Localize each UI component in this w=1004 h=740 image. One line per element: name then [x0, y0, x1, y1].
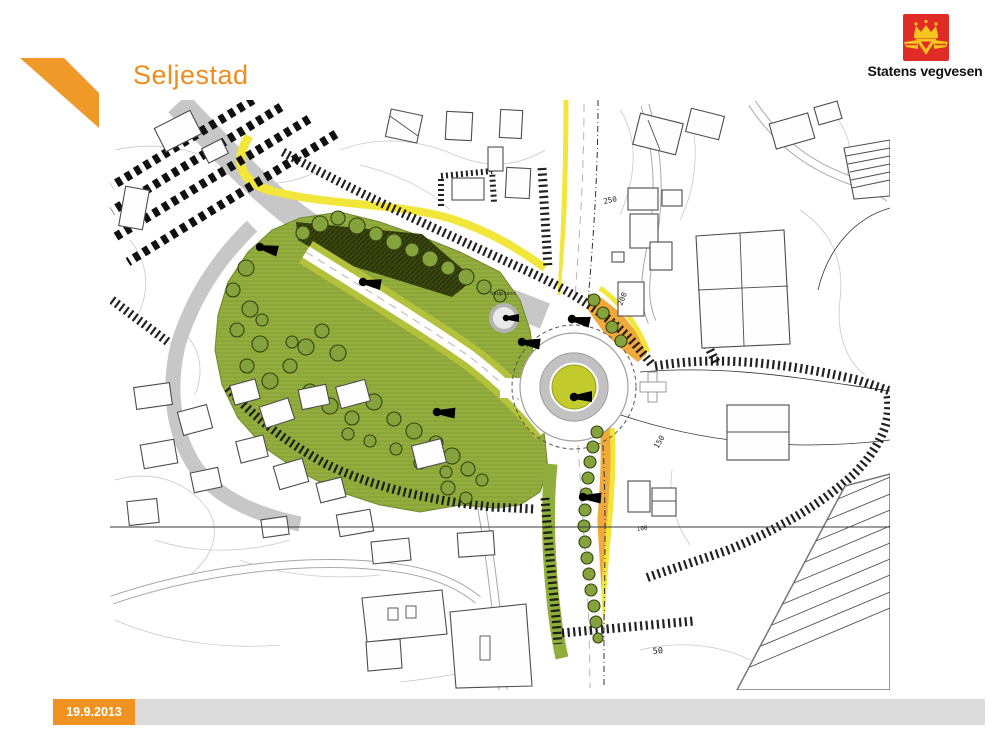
label-snuplass: Snuplass [490, 291, 517, 297]
label-chainage-50: 50 [652, 646, 663, 657]
page-title: Seljestad [133, 60, 249, 91]
footer-date-badge: 19.9.2013 [53, 699, 135, 725]
logo-wordmark: Statens vegvesen [850, 63, 1000, 79]
site-plan-map: Snuplass 250 200 150 100 50 [110, 100, 890, 690]
label-chainage-100: 100 [636, 524, 648, 532]
corner-accent-shape [0, 0, 120, 150]
label-chainage-250: 250 [603, 194, 619, 206]
label-chainage-150: 150 [652, 433, 667, 450]
footer-bar [53, 699, 985, 725]
park-area [215, 212, 562, 658]
footer-date: 19.9.2013 [66, 705, 122, 719]
